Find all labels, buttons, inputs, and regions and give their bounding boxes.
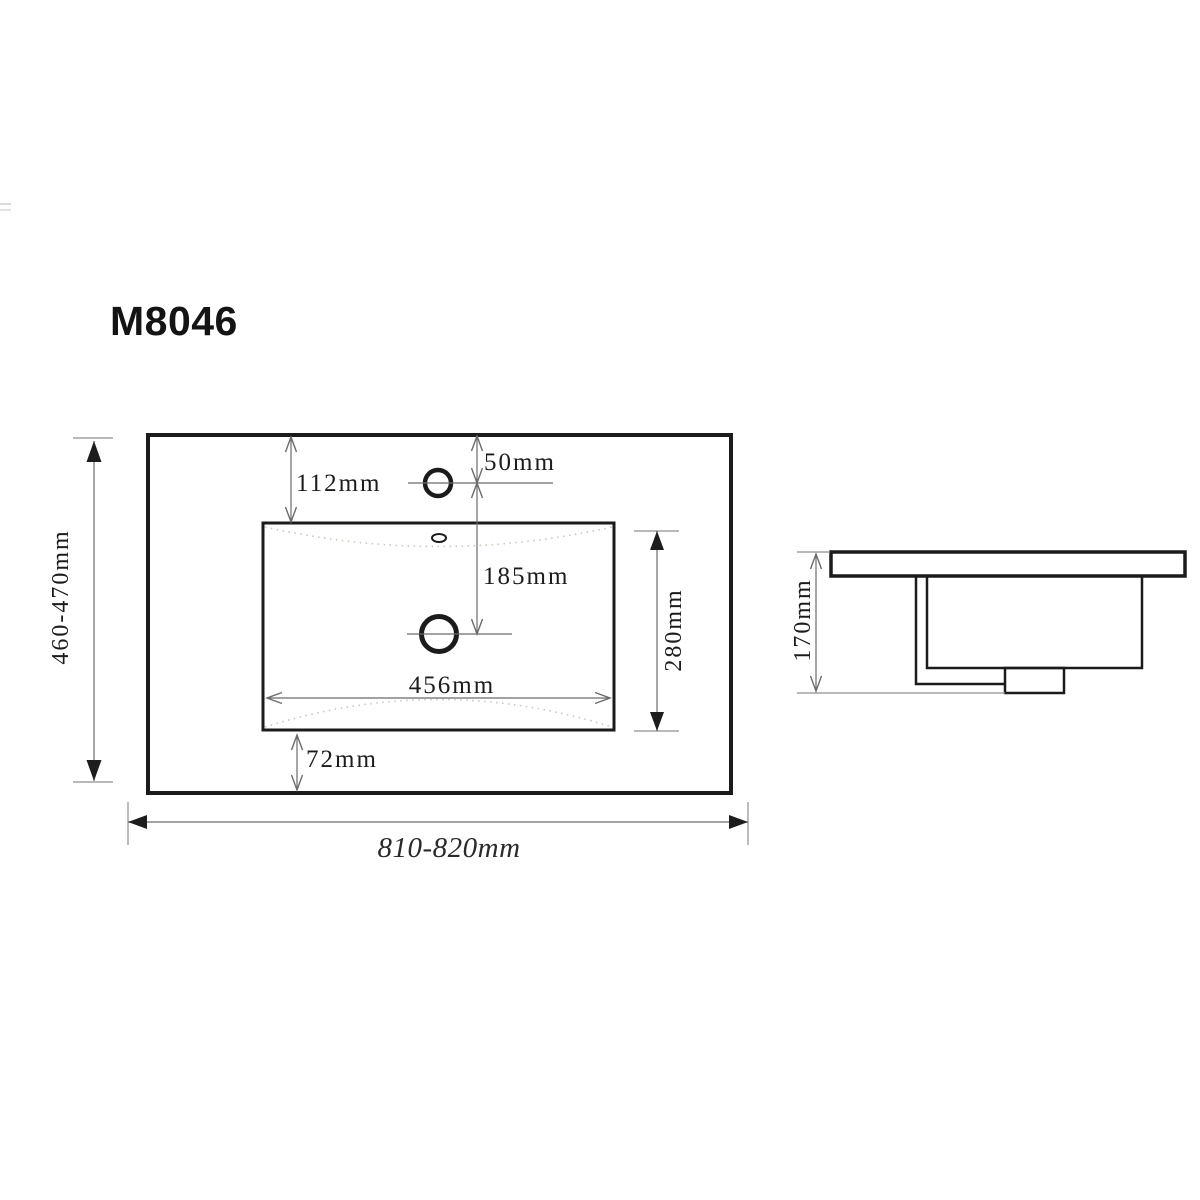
dim-overall-depth: 460-470mm (48, 438, 113, 782)
dim-label-280: 280mm (661, 588, 687, 671)
plan-view: 112mm 50mm 185mm 456mm (48, 435, 748, 864)
dim-side-height: 170mm (790, 552, 1005, 693)
basin-slope-contour-top (265, 527, 612, 547)
dim-overall-width: 810-820mm (128, 802, 748, 864)
dim-basin-width: 456mm (267, 672, 610, 704)
technical-drawing: 112mm 50mm 185mm 456mm (0, 0, 1200, 1200)
arrowhead-right-icon (729, 815, 748, 829)
arrowhead-up-icon (87, 441, 102, 462)
drawing-sheet: M8046 112mm (0, 0, 1200, 1200)
arrowhead-up-icon (650, 531, 664, 550)
overflow-hole (432, 534, 446, 542)
dim-label-170: 170mm (790, 578, 816, 661)
dim-label-185: 185mm (483, 563, 569, 590)
dim-label-72: 72mm (306, 746, 378, 773)
dim-label-overall-depth: 460-470mm (48, 529, 74, 664)
dim-top-edge-to-basin: 112mm (286, 437, 382, 522)
dim-label-50: 50mm (484, 449, 556, 476)
arrowhead-down-icon (87, 760, 102, 781)
dim-basin-to-front: 72mm (292, 735, 378, 790)
plan-outer-outline (148, 435, 731, 793)
side-view: 170mm (790, 552, 1185, 693)
side-basin-inner-wall (927, 576, 1142, 668)
side-drain-fitting (1005, 668, 1064, 693)
arrowhead-left-icon (128, 815, 147, 829)
basin-slope-contour-bottom (265, 700, 612, 728)
dim-faucet-offsets: 50mm 185mm (472, 436, 570, 634)
dim-label-112: 112mm (296, 470, 381, 497)
dim-label-overall-width: 810-820mm (377, 832, 520, 864)
dim-label-456: 456mm (409, 672, 495, 699)
arrowhead-down-icon (650, 712, 664, 731)
dim-basin-depth: 280mm (634, 531, 687, 731)
side-slab-outline (831, 552, 1185, 576)
